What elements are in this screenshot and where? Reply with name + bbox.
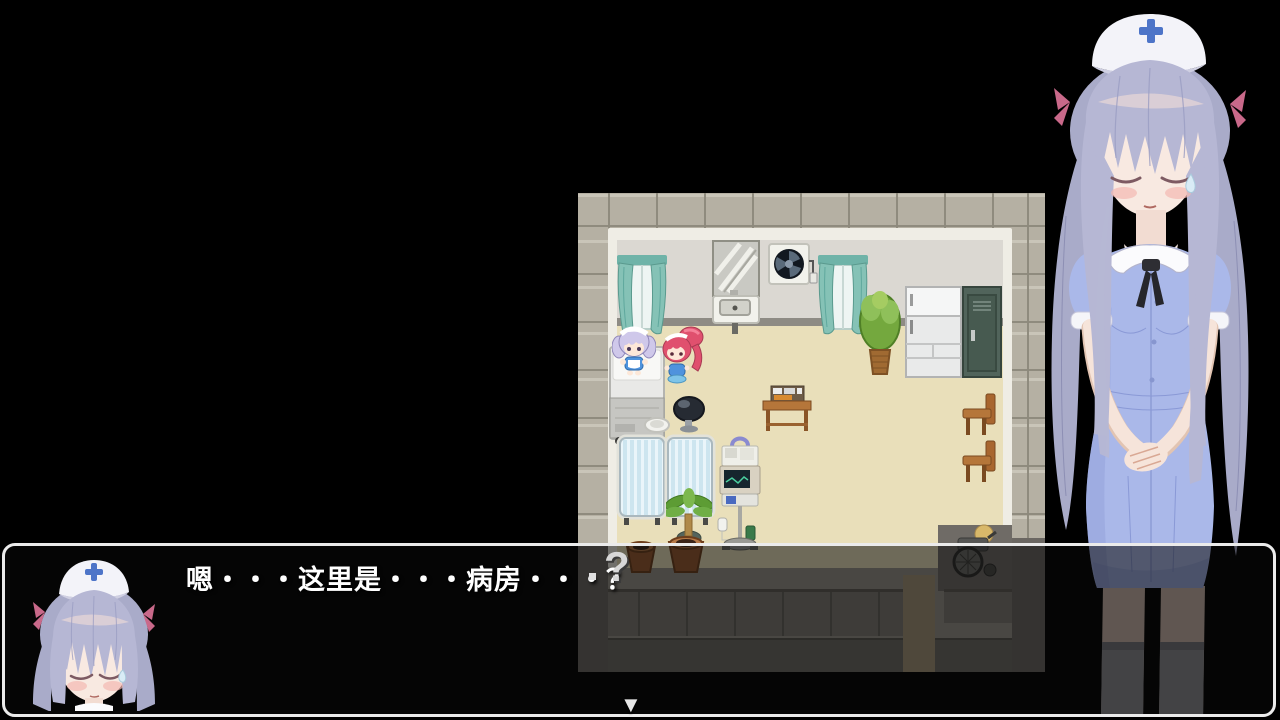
game-screen[interactable]: 嗯・・・这里是・・・病房・・・？ ? ▼ <box>0 0 1280 720</box>
dialogue-speaker-portrait <box>21 554 167 711</box>
wall-sink <box>712 290 760 334</box>
ventilation-fan <box>768 243 820 289</box>
wall-mirror <box>712 240 760 297</box>
school-chair-lower <box>962 440 998 484</box>
question-emote: ? <box>604 543 630 591</box>
curtained-bed-left <box>616 434 668 526</box>
locker <box>962 286 1002 378</box>
food-table <box>762 385 812 434</box>
emote-dot <box>589 573 596 580</box>
character-maid-redhead[interactable] <box>658 326 704 384</box>
potted-tree <box>858 288 902 380</box>
nurse-bust-portrait <box>21 554 167 711</box>
refrigerator <box>905 286 962 378</box>
serving-plate <box>644 417 670 433</box>
character-maid-lavender[interactable] <box>612 323 656 379</box>
dialogue-text: 嗯・・・这里是・・・病房・・・？ <box>186 563 634 597</box>
iv-monitor-stand <box>716 434 764 554</box>
school-chair-upper <box>962 393 998 437</box>
stool <box>672 395 706 433</box>
continue-arrow-icon[interactable]: ▼ <box>620 692 642 718</box>
message-window[interactable]: 嗯・・・这里是・・・病房・・・？ <box>2 543 1276 717</box>
